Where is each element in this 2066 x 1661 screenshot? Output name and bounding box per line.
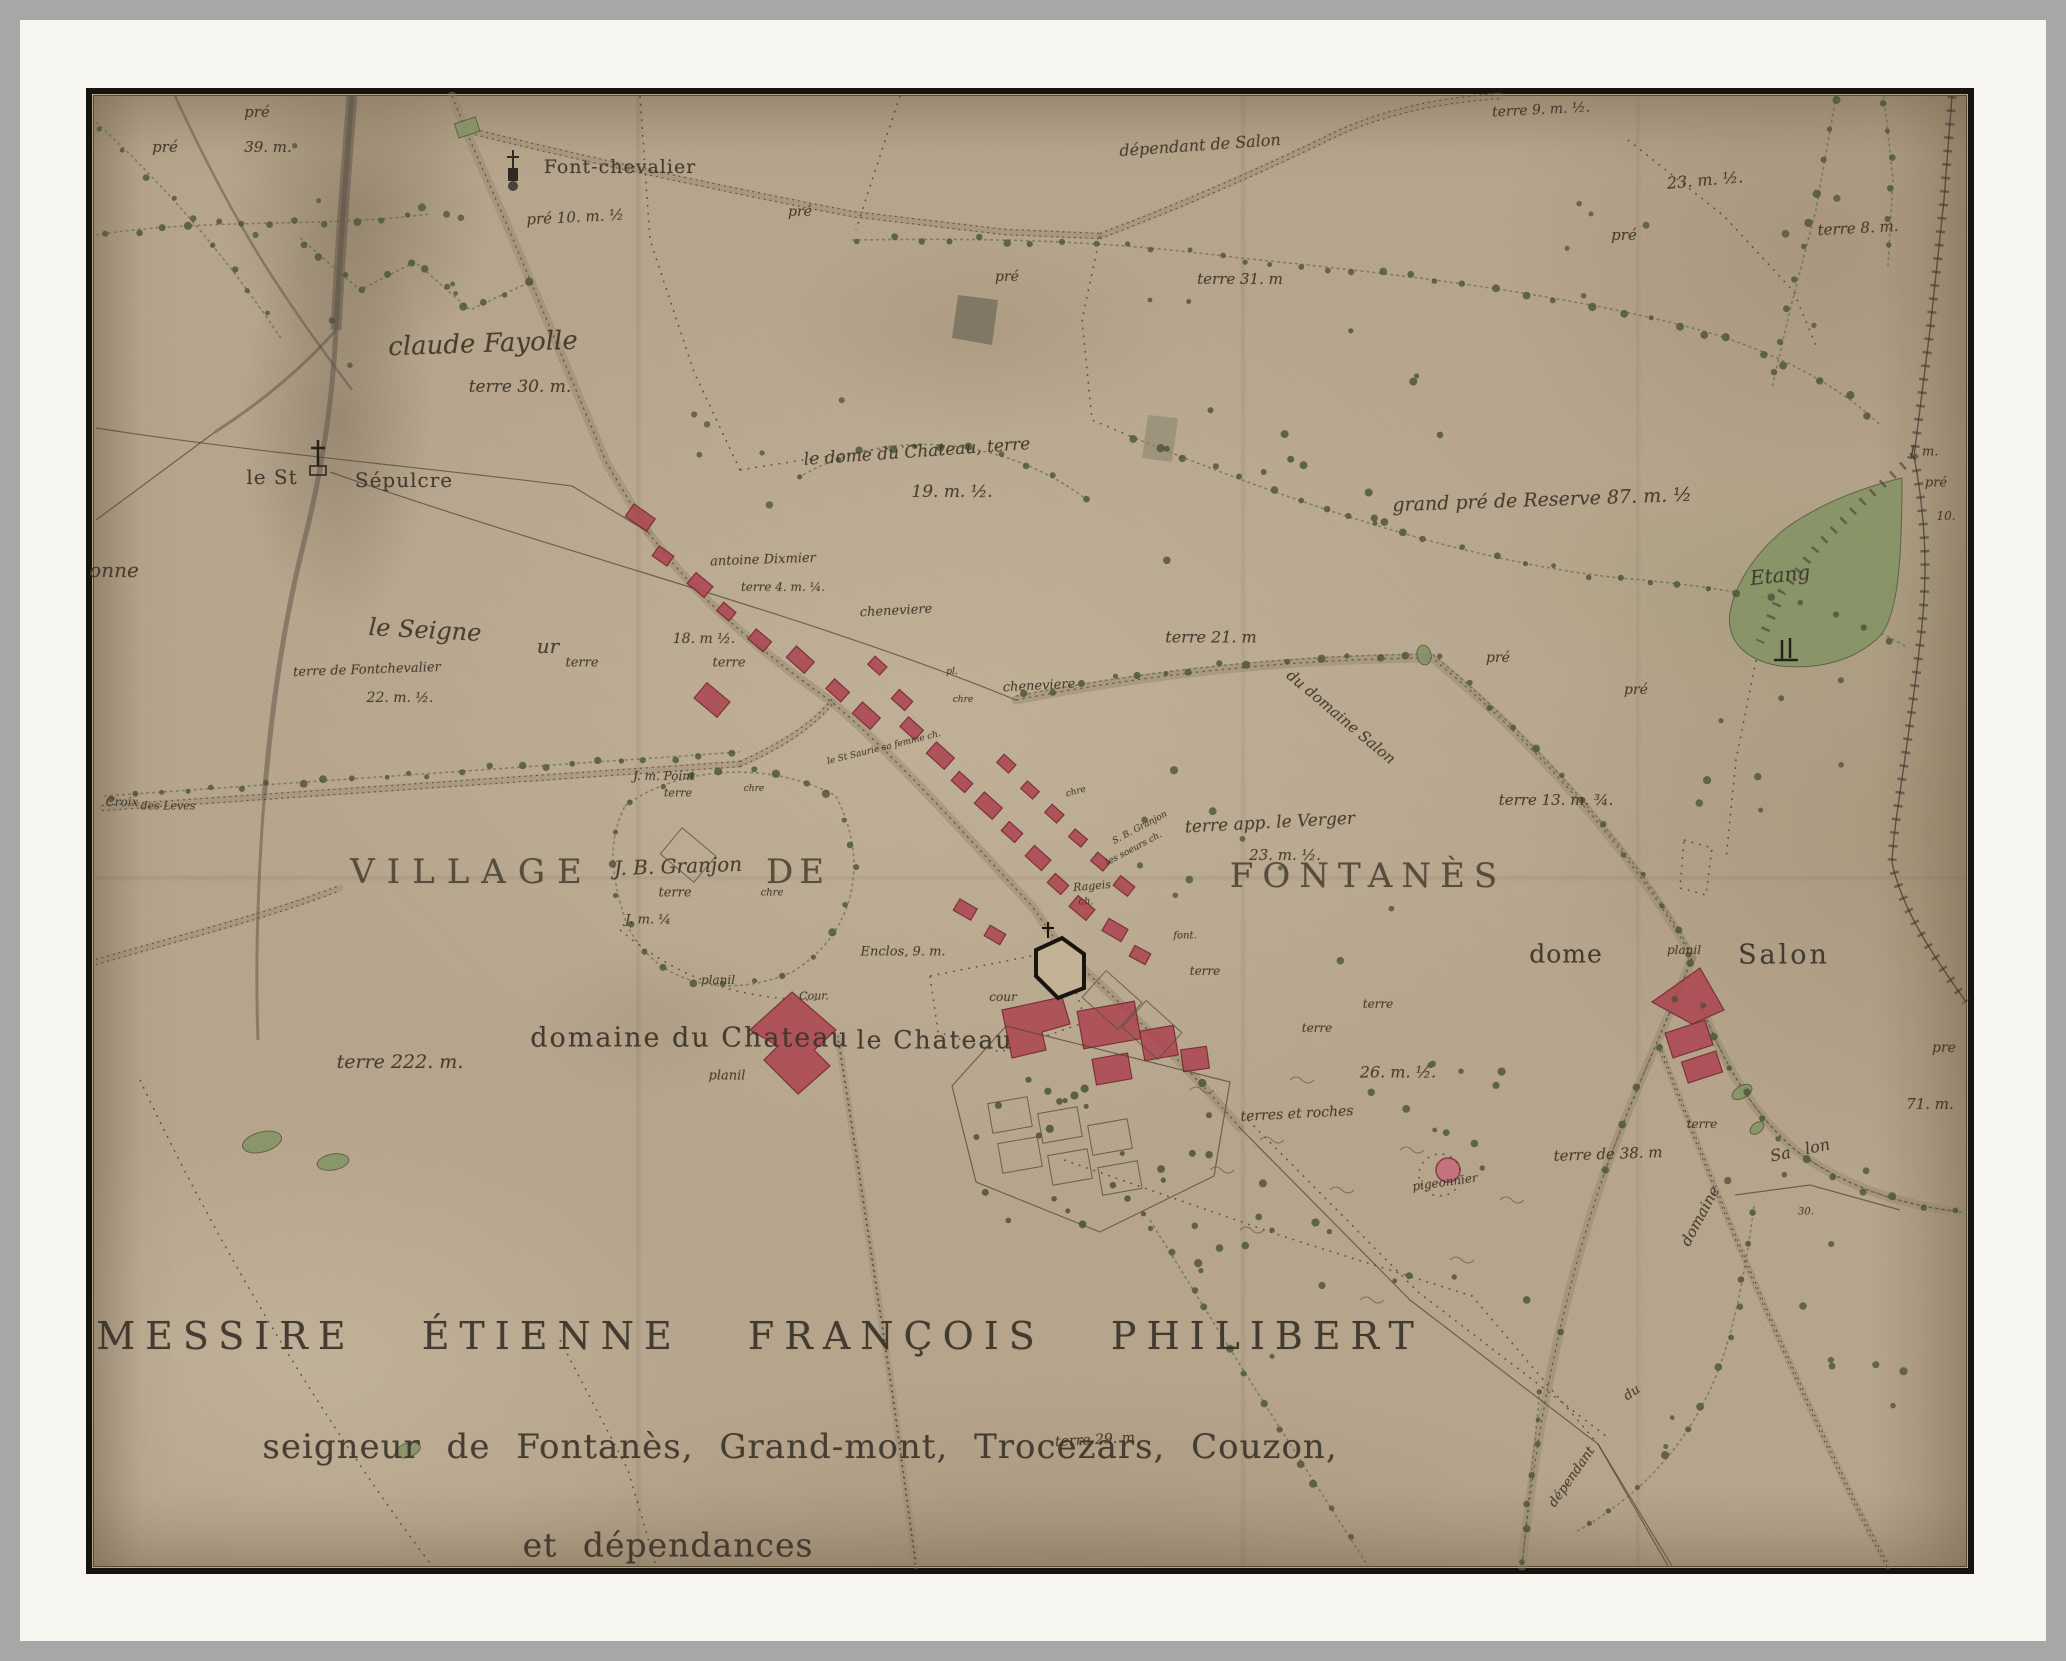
- map-paper: [93, 95, 1967, 1567]
- map-frame: [86, 88, 1974, 1574]
- historical-map-scan: prépré39. m.Font-chevalierdépendant de S…: [0, 0, 2066, 1661]
